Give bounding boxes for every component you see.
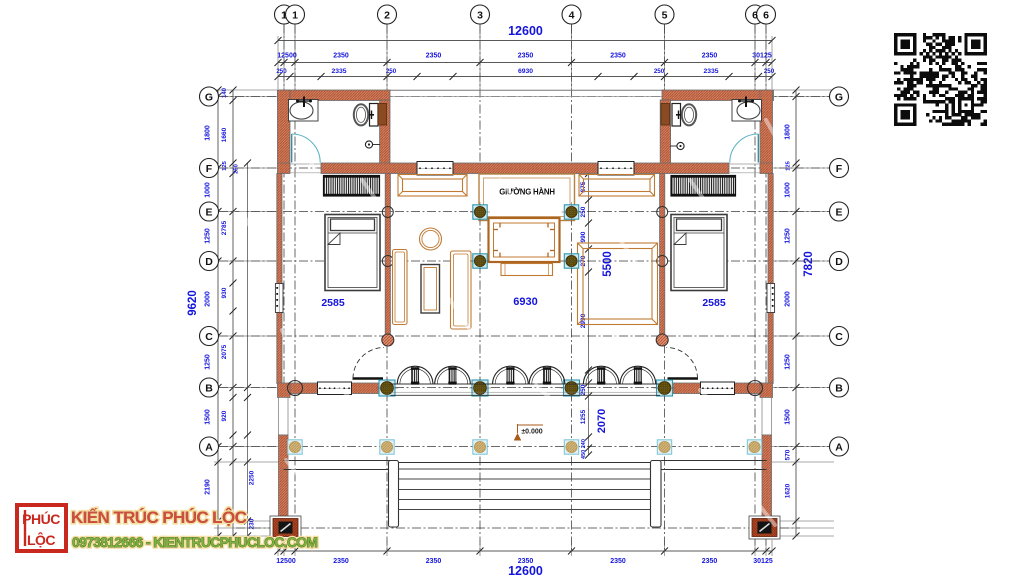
svg-text:2190: 2190	[205, 479, 212, 495]
svg-text:2350: 2350	[426, 558, 442, 565]
svg-text:D: D	[205, 256, 213, 268]
svg-text:1500: 1500	[205, 409, 212, 425]
svg-text:1620: 1620	[785, 483, 792, 498]
svg-text:2250: 2250	[249, 470, 256, 485]
svg-text:2350: 2350	[610, 53, 626, 60]
svg-text:2000: 2000	[205, 291, 212, 307]
svg-text:570: 570	[785, 449, 792, 460]
svg-text:12500: 12500	[276, 558, 296, 565]
svg-text:125: 125	[786, 160, 792, 170]
svg-text:3: 3	[477, 9, 483, 21]
svg-text:C: C	[835, 331, 843, 343]
svg-text:2075: 2075	[221, 344, 228, 359]
svg-text:5: 5	[662, 9, 668, 21]
svg-text:12600: 12600	[508, 24, 543, 38]
svg-text:1800: 1800	[785, 124, 792, 140]
svg-text:F: F	[206, 163, 213, 175]
svg-text:930: 930	[221, 287, 228, 298]
svg-text:1000: 1000	[785, 182, 792, 198]
svg-text:±0.000: ±0.000	[521, 429, 542, 436]
svg-text:G: G	[205, 91, 213, 103]
svg-text:1660: 1660	[221, 127, 228, 142]
svg-text:1800: 1800	[205, 125, 212, 141]
svg-text:250: 250	[234, 164, 240, 174]
svg-text:250: 250	[580, 384, 587, 395]
svg-text:920: 920	[221, 410, 228, 421]
svg-text:2350: 2350	[702, 558, 718, 565]
svg-text:2585: 2585	[702, 297, 726, 309]
svg-text:250: 250	[654, 68, 665, 75]
svg-text:2350: 2350	[702, 53, 718, 60]
svg-text:12600: 12600	[508, 564, 543, 576]
svg-text:B: B	[205, 382, 213, 394]
svg-text:6: 6	[763, 9, 769, 21]
svg-text:2335: 2335	[331, 68, 346, 75]
svg-text:2350: 2350	[610, 558, 626, 565]
svg-text:1250: 1250	[205, 354, 212, 370]
svg-text:2: 2	[384, 9, 390, 21]
svg-text:1250: 1250	[785, 228, 792, 244]
svg-text:1250: 1250	[205, 228, 212, 244]
svg-text:4: 4	[569, 9, 575, 21]
svg-text:KIẾN TRÚC PHÚC LỘC: KIẾN TRÚC PHÚC LỘC	[71, 508, 247, 527]
svg-text:2335: 2335	[703, 68, 718, 75]
svg-text:E: E	[835, 206, 842, 218]
svg-text:C: C	[205, 331, 213, 343]
svg-text:PHÚC: PHÚC	[22, 510, 60, 527]
svg-text:2350: 2350	[426, 53, 442, 60]
svg-text:2350: 2350	[518, 53, 534, 60]
svg-text:250: 250	[764, 68, 775, 75]
svg-text:2350: 2350	[333, 558, 349, 565]
svg-text:6930: 6930	[518, 68, 533, 75]
svg-text:1255: 1255	[580, 409, 587, 424]
svg-text:B: B	[835, 382, 843, 394]
svg-text:12500: 12500	[277, 53, 297, 60]
svg-text:2785: 2785	[221, 220, 228, 235]
svg-text:1000: 1000	[205, 182, 212, 198]
svg-text:7820: 7820	[803, 251, 815, 277]
svg-text:1500: 1500	[785, 409, 792, 425]
svg-text:F: F	[836, 163, 843, 175]
svg-text:6930: 6930	[513, 296, 537, 308]
svg-text:LỘC: LỘC	[27, 531, 55, 548]
svg-text:1: 1	[292, 9, 298, 21]
svg-text:30125: 30125	[753, 558, 773, 565]
svg-text:6: 6	[752, 9, 758, 21]
svg-text:5500: 5500	[602, 251, 614, 277]
svg-text:E: E	[205, 206, 212, 218]
svg-text:G: G	[835, 91, 843, 103]
svg-text:990: 990	[580, 231, 587, 242]
svg-text:A: A	[205, 441, 213, 453]
svg-text:1250: 1250	[785, 354, 792, 370]
svg-text:2070: 2070	[596, 409, 608, 433]
svg-text:9620: 9620	[187, 290, 199, 316]
svg-text:D: D	[835, 256, 843, 268]
svg-text:1: 1	[281, 9, 287, 21]
svg-text:A: A	[835, 441, 843, 453]
svg-text:2350: 2350	[333, 53, 349, 60]
svg-text:2000: 2000	[785, 291, 792, 307]
svg-text:0973812666 - KIENTRUCPHUCLOC.C: 0973812666 - KIENTRUCPHUCLOC.COM	[72, 535, 317, 550]
svg-text:250: 250	[386, 68, 397, 75]
svg-text:2585: 2585	[321, 297, 345, 309]
svg-text:450 240: 450 240	[581, 439, 587, 459]
svg-text:125: 125	[222, 160, 228, 170]
